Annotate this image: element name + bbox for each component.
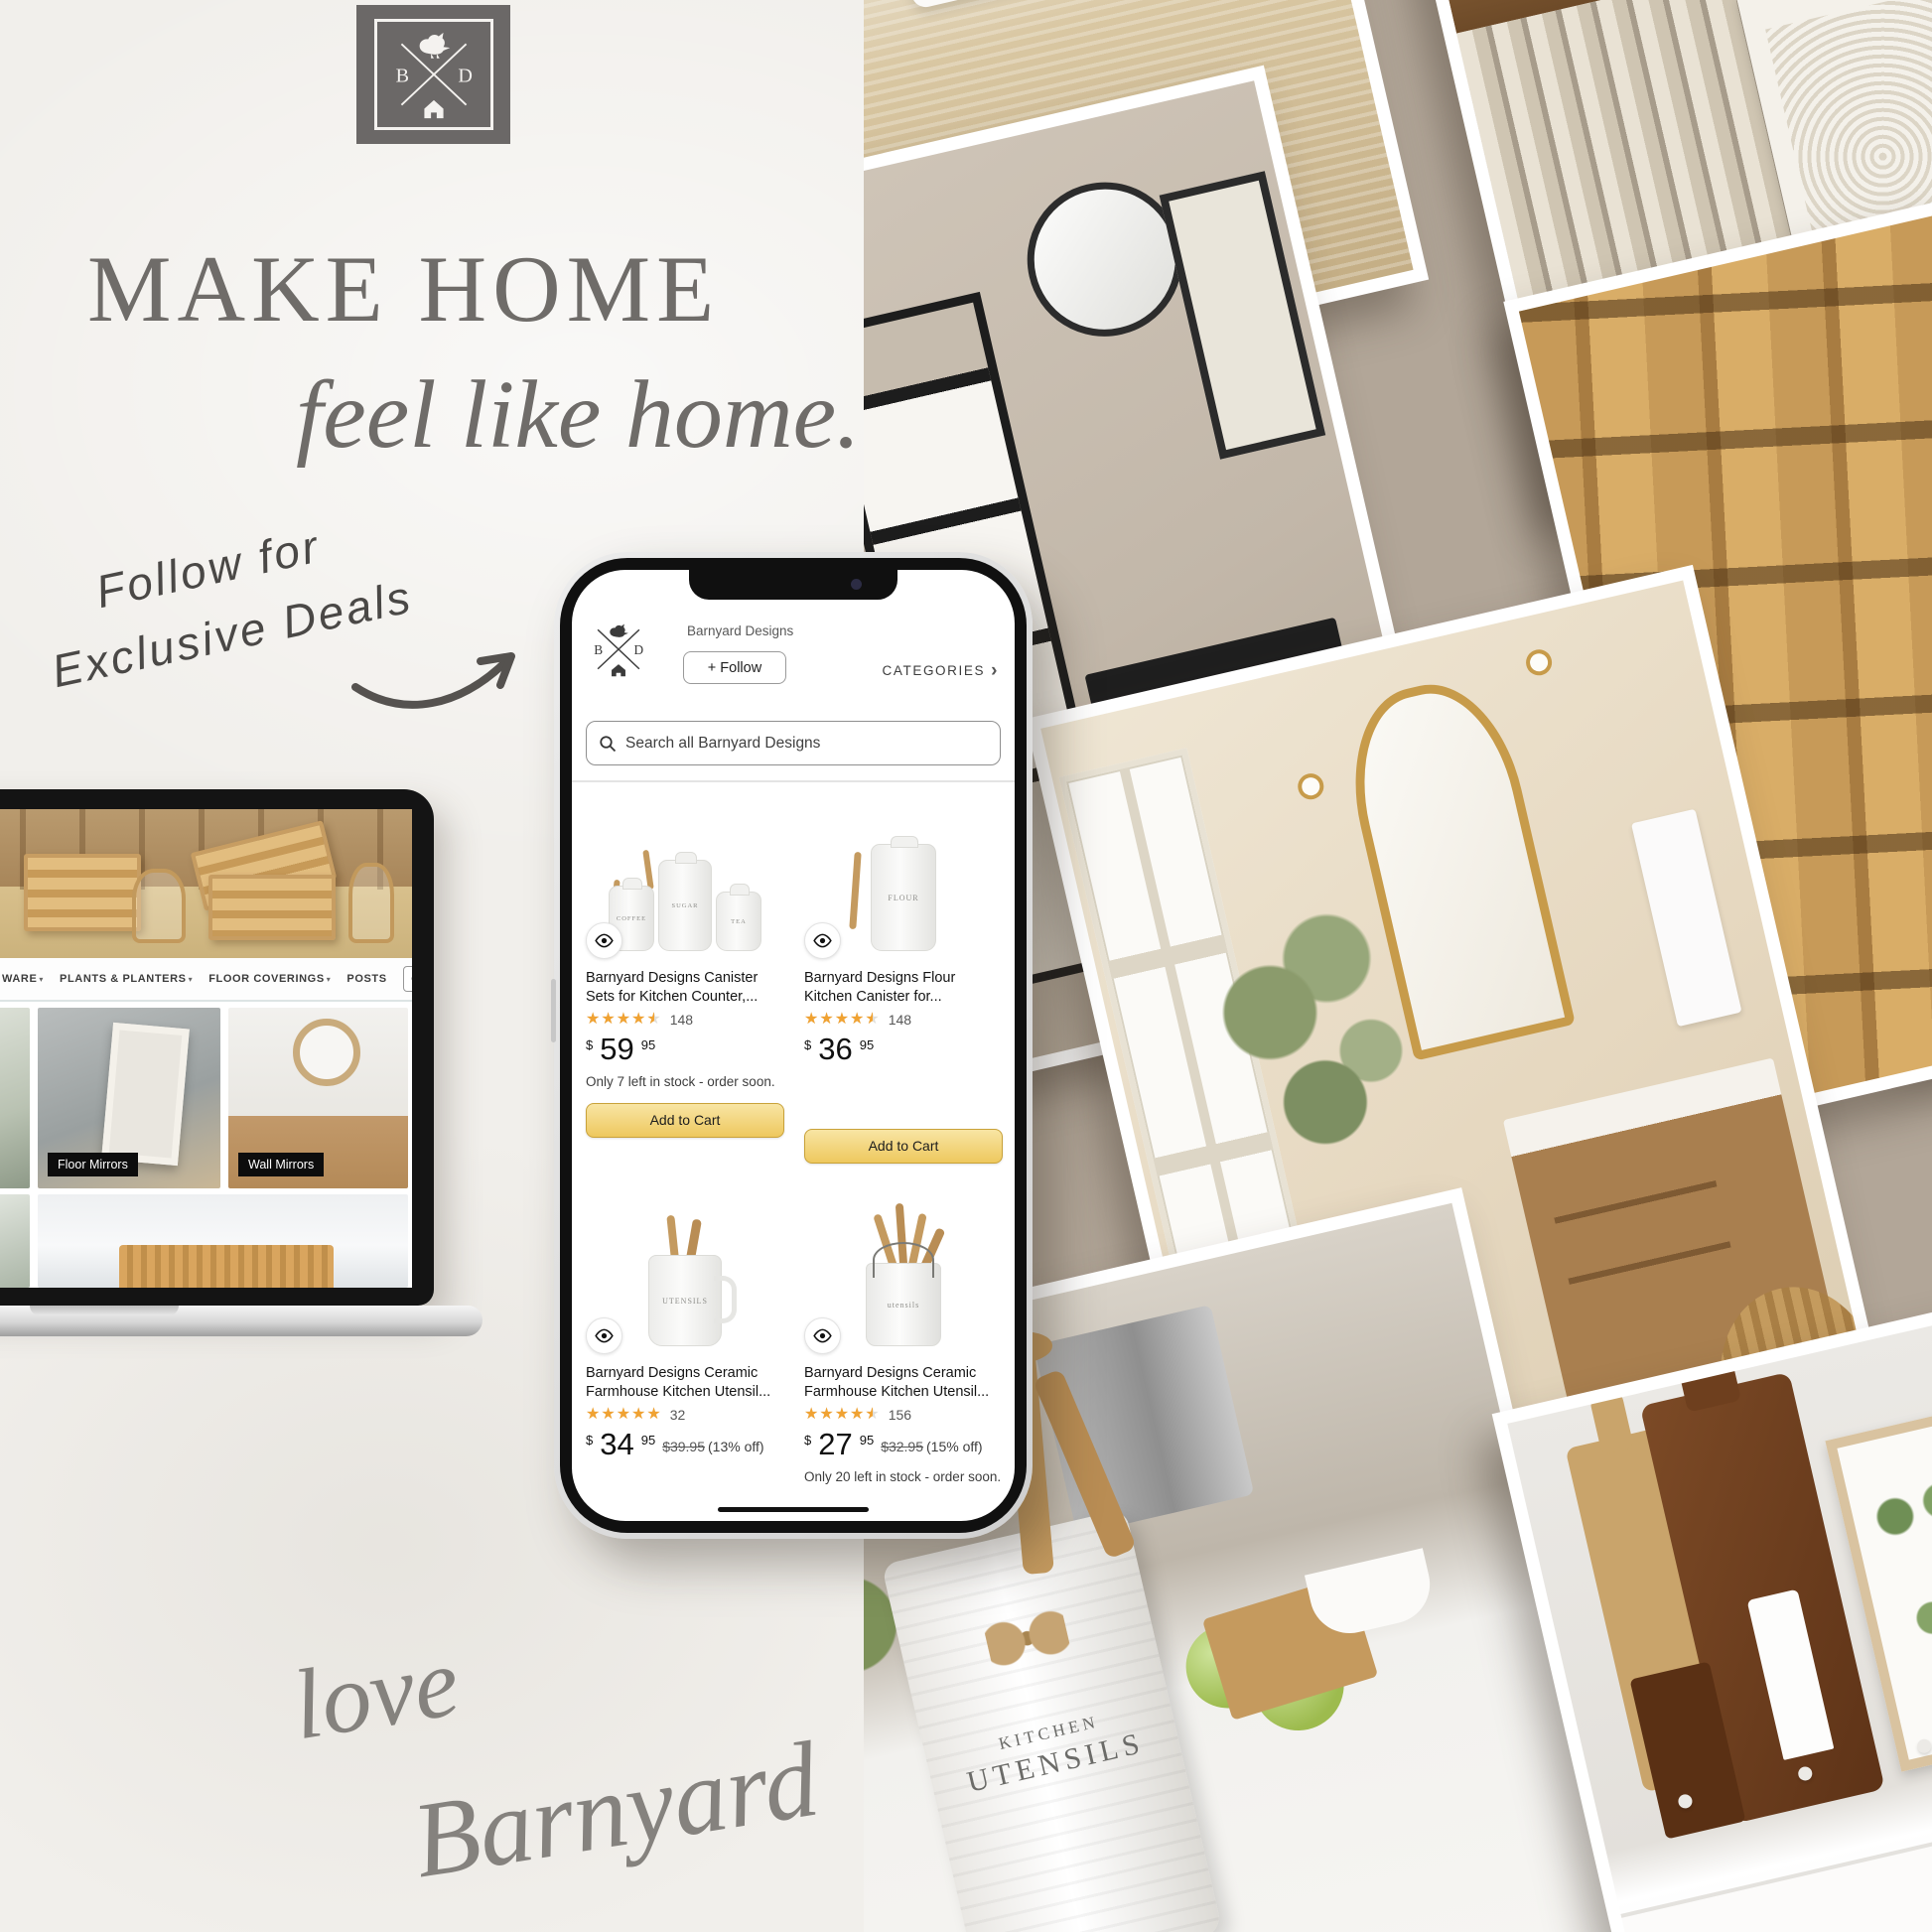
categories-link[interactable]: CATEGORIES › xyxy=(883,661,999,680)
chicken-icon xyxy=(419,33,450,59)
product-card-canister-set: COFFEE SUGAR TEA Barnyard Designs Canist… xyxy=(586,790,784,1138)
store-name: Barnyard Designs xyxy=(687,623,793,638)
laptop-search-input[interactable]: Search all Barnyard Designs xyxy=(403,966,412,992)
product-image-utensil-pitcher[interactable]: UTENSILS xyxy=(586,1185,784,1354)
product-card-utensil-pitcher: UTENSILS Barnyard Designs Ceramic Farmho… xyxy=(586,1185,784,1458)
laptop-nav-item-ware[interactable]: WARE▾ xyxy=(2,973,44,985)
category-label-wall-mirrors[interactable]: Wall Mirrors xyxy=(238,1153,324,1176)
utensil-crock: KITCHEN UTENSILS xyxy=(882,1509,1223,1932)
star-rating: ★★★★★★★★★★ xyxy=(804,1012,881,1028)
phone-side-button xyxy=(551,979,556,1042)
product-image-flour-canister[interactable]: FLOUR xyxy=(804,790,1003,959)
product-rating: ★★★★★★★★★★ 148 xyxy=(586,1012,784,1028)
product-rating: ★★★★★★★★★★ 148 xyxy=(804,1012,1003,1028)
canister-label-tea: TEA xyxy=(731,918,747,925)
signature-line2: Barnyard xyxy=(405,1719,826,1904)
product-price: $2795 $32.95 (15% off) xyxy=(804,1431,1003,1458)
laptop-nav-bar: WARE▾ PLANTS & PLANTERS▾ FLOOR COVERINGS… xyxy=(0,958,412,1002)
laptop-nav-item-posts[interactable]: POSTS xyxy=(346,973,386,985)
chevron-right-icon: › xyxy=(991,661,999,680)
laptop-tile-doormat[interactable] xyxy=(38,1194,408,1288)
product-title[interactable]: Barnyard Designs Ceramic Farmhouse Kitch… xyxy=(804,1364,1003,1401)
crest-letter-d: D xyxy=(458,66,473,87)
bucket-label-utensils: utensils xyxy=(888,1301,919,1310)
laptop-base xyxy=(0,1306,483,1336)
category-label-floor-mirrors[interactable]: Floor Mirrors xyxy=(48,1153,138,1176)
product-card-utensil-bucket: utensils Barnyard Designs Ceramic Farmho… xyxy=(804,1185,1003,1486)
eye-icon xyxy=(594,930,615,951)
store-header: B D Barnyard Designs + Follow CATEGORIES… xyxy=(586,610,1001,709)
canister-label-sugar: SUGAR xyxy=(671,902,698,909)
svg-text:D: D xyxy=(633,642,643,657)
search-icon xyxy=(411,974,412,985)
laptop-category-tile-partial[interactable] xyxy=(0,1008,30,1188)
canister-label-flour: FLOUR xyxy=(888,894,918,902)
review-count: 148 xyxy=(670,1012,693,1028)
stock-note: Only 7 left in stock - order soon. xyxy=(586,1073,784,1091)
star-rating: ★★★★★★★★★★ xyxy=(586,1407,662,1423)
product-image-utensil-bucket[interactable]: utensils xyxy=(804,1185,1003,1354)
crest-letter-b: B xyxy=(395,66,408,87)
product-price: $5995 xyxy=(586,1035,784,1063)
categories-label: CATEGORIES xyxy=(883,663,986,678)
chevron-down-icon: ▾ xyxy=(189,975,194,984)
curved-arrow-icon xyxy=(349,645,533,730)
add-to-cart-button[interactable]: Add to Cart xyxy=(586,1103,784,1138)
headline-caps: MAKE HOME xyxy=(87,234,720,344)
stock-note: Only 20 left in stock - order soon. xyxy=(804,1468,1003,1486)
chicken-icon xyxy=(610,623,628,636)
product-price: $3695 xyxy=(804,1035,1003,1063)
follow-button[interactable]: + Follow xyxy=(683,651,786,684)
product-image-canister-set[interactable]: COFFEE SUGAR TEA xyxy=(586,790,784,959)
star-rating: ★★★★★★★★★★ xyxy=(586,1012,662,1028)
laptop-hero-banner xyxy=(0,809,412,958)
storefront-page: B D Barnyard Designs + Follow CATEGORIES… xyxy=(586,610,1001,1521)
quick-look-button[interactable] xyxy=(586,922,622,959)
laptop-nav-item-plants[interactable]: PLANTS & PLANTERS▾ xyxy=(60,973,193,985)
laptop-screen-content: WARE▾ PLANTS & PLANTERS▾ FLOOR COVERINGS… xyxy=(0,809,412,1288)
product-card-flour-canister: FLOUR Barnyard Designs Flour Kitchen Can… xyxy=(804,790,1003,1164)
laptop-tile-partial-2[interactable] xyxy=(0,1194,30,1288)
laptop-mockup: WARE▾ PLANTS & PLANTERS▾ FLOOR COVERINGS… xyxy=(0,789,434,1306)
home-indicator xyxy=(718,1507,869,1512)
review-count: 156 xyxy=(889,1407,911,1423)
quick-look-button[interactable] xyxy=(586,1317,622,1354)
product-title[interactable]: Barnyard Designs Flour Kitchen Canister … xyxy=(804,969,1003,1006)
discount-label: (13% off) xyxy=(708,1439,764,1454)
signature-line1: love xyxy=(285,1624,467,1763)
laptop-category-row: Floor Mirrors Wall Mirrors xyxy=(0,1002,412,1194)
laptop-category-tile-floor-mirrors[interactable]: Floor Mirrors xyxy=(38,1008,220,1188)
old-price: $32.95 xyxy=(881,1439,923,1454)
eye-icon xyxy=(812,930,833,951)
brand-logo-badge: B D xyxy=(356,5,510,144)
search-icon xyxy=(599,735,617,753)
quick-look-button[interactable] xyxy=(804,922,841,959)
review-count: 148 xyxy=(889,1012,911,1028)
chevron-down-icon: ▾ xyxy=(39,975,44,984)
camera-icon xyxy=(851,579,862,590)
phone-notch xyxy=(689,570,897,600)
old-price: $39.95 xyxy=(662,1439,705,1454)
discount-label: (15% off) xyxy=(926,1439,983,1454)
phone-screen: B D Barnyard Designs + Follow CATEGORIES… xyxy=(572,570,1015,1521)
promo-canvas: KITCHEN UTENSILS xyxy=(0,0,1932,1932)
star-rating: ★★★★★★★★★★ xyxy=(804,1407,881,1423)
crest-icon: B D xyxy=(386,29,482,120)
barn-icon xyxy=(424,100,443,118)
quick-look-button[interactable] xyxy=(804,1317,841,1354)
product-title[interactable]: Barnyard Designs Ceramic Farmhouse Kitch… xyxy=(586,1364,784,1401)
laptop-category-tile-wall-mirrors[interactable]: Wall Mirrors xyxy=(228,1008,408,1188)
chevron-down-icon: ▾ xyxy=(327,975,332,984)
review-count: 32 xyxy=(670,1407,686,1423)
eye-icon xyxy=(812,1325,833,1346)
store-logo: B D xyxy=(590,621,647,677)
search-placeholder: Search all Barnyard Designs xyxy=(625,735,820,753)
search-input[interactable]: Search all Barnyard Designs xyxy=(586,721,1001,765)
product-price: $3495 $39.95 (13% off) xyxy=(586,1431,784,1458)
svg-text:B: B xyxy=(594,642,603,657)
laptop-next-row xyxy=(0,1194,412,1288)
crest-icon: B D xyxy=(590,621,647,677)
brand-logo-crest: B D xyxy=(374,19,493,130)
add-to-cart-button[interactable]: Add to Cart xyxy=(804,1129,1003,1164)
phone-mockup: B D Barnyard Designs + Follow CATEGORIES… xyxy=(554,552,1033,1539)
product-rating: ★★★★★★★★★★ 156 xyxy=(804,1407,1003,1423)
product-grid: COFFEE SUGAR TEA Barnyard Designs Canist… xyxy=(586,790,1001,1521)
laptop-nav-item-floor-coverings[interactable]: FLOOR COVERINGS▾ xyxy=(208,973,331,985)
barn-icon xyxy=(612,664,625,676)
product-rating: ★★★★★★★★★★ 32 xyxy=(586,1407,784,1423)
divider xyxy=(572,780,1015,782)
pitcher-label-utensils: UTENSILS xyxy=(662,1297,708,1306)
product-title[interactable]: Barnyard Designs Canister Sets for Kitch… xyxy=(586,969,784,1006)
eye-icon xyxy=(594,1325,615,1346)
headline-script: feel like home. xyxy=(296,359,861,471)
canister-label-coffee: COFFEE xyxy=(617,915,646,922)
